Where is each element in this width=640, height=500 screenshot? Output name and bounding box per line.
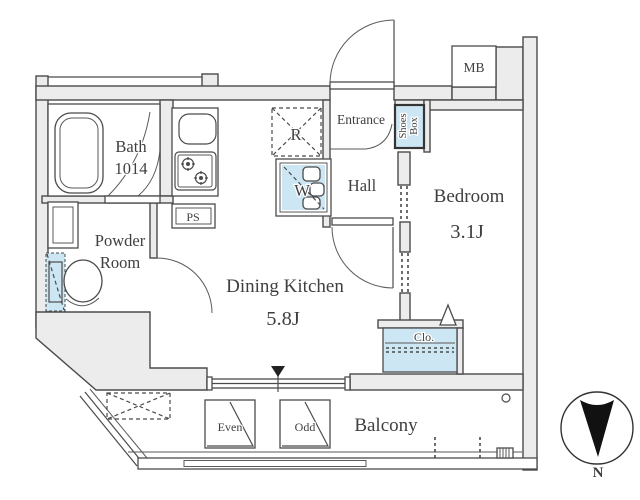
wall-dk-bedroom-upper: [400, 222, 410, 252]
entrance-door-swing-arc: [330, 20, 394, 84]
window-marker-icon: [271, 366, 285, 377]
bedroom-size-label: 3.1J: [450, 221, 484, 243]
hatch-even-label: Even: [218, 420, 243, 434]
balcony-label: Balcony: [354, 415, 418, 436]
bath-label: Bath: [115, 137, 147, 156]
shoes-box-label-1: Shoes: [398, 113, 409, 138]
refrigerator-label: R: [290, 125, 301, 144]
floor-plan: MB Bath 1014: [0, 0, 640, 500]
closet: Clo.: [383, 328, 457, 372]
refrigerator-space: R: [272, 108, 321, 156]
emergency-hatch-dashed-box: [107, 393, 170, 419]
wall-right: [523, 37, 537, 470]
wall-powder-right: [150, 203, 157, 258]
dining-kitchen-area: Dining Kitchen 5.8J: [226, 276, 344, 330]
kitchen-counter: [172, 108, 218, 196]
balcony-partition-hatch: [497, 448, 513, 458]
dining-kitchen-label: Dining Kitchen: [226, 276, 344, 297]
wall-bottom-right-band: [350, 374, 523, 390]
sliding-door-hall-bedroom: [401, 186, 407, 221]
entrance-threshold: [330, 82, 394, 89]
wall-right-of-mb: [496, 47, 523, 100]
wall-top-right-band: [394, 86, 452, 100]
ps-label: PS: [186, 210, 199, 224]
pipe-space: PS: [172, 204, 215, 228]
compass-needle: [580, 400, 614, 457]
bedroom-label: Bedroom: [434, 186, 505, 207]
wall-closet-right: [457, 328, 463, 374]
hall-threshold: [332, 218, 393, 225]
powder-room-label-2: Room: [100, 253, 141, 272]
dining-kitchen-size-label: 5.8J: [266, 308, 300, 330]
hall-label: Hall: [348, 176, 377, 195]
wall-bedroom-top: [424, 100, 523, 110]
wall-top-left-band: [36, 86, 330, 100]
hatch-even: Even: [205, 400, 255, 448]
washer-label: W: [294, 181, 310, 200]
drain-icon: [502, 394, 510, 402]
shoes-box-label-2: Box: [409, 117, 420, 135]
entrance-label: Entrance: [337, 112, 385, 127]
entrance-area: Entrance Shoes Box: [330, 105, 424, 149]
powder-room-label-1: Powder: [95, 231, 146, 250]
balcony-area: Even Odd Balcony: [80, 389, 537, 469]
compass-north-label: N: [593, 465, 604, 481]
closet-label: Clo.: [414, 330, 434, 344]
washer-space: W: [276, 159, 331, 216]
wall-under-mb: [452, 87, 496, 100]
entrance-door: [330, 20, 394, 89]
sliding-door-dk-bedroom: [402, 253, 408, 292]
bathtub: [55, 113, 103, 193]
closet-door-symbol: [440, 305, 456, 325]
wall-hall-bedroom: [398, 152, 410, 185]
wall-top-notch: [202, 74, 218, 87]
bath-room: Bath 1014: [48, 104, 160, 203]
entrance-step-line: [330, 124, 392, 149]
hall-area: Hall: [332, 176, 393, 288]
balcony-bottom-railing: [128, 452, 537, 469]
toilet: [46, 253, 102, 311]
hatch-odd-label: Odd: [295, 420, 316, 434]
wall-diagonal-wedge: [36, 312, 207, 390]
compass-icon: N: [561, 392, 633, 481]
meter-box-label: MB: [463, 60, 484, 75]
balcony-diagonal-railing: [80, 389, 147, 466]
toilet-bowl: [64, 260, 102, 302]
bath-threshold: [105, 196, 160, 203]
balcony-window: [207, 366, 350, 392]
wall-dk-bedroom-lower: [400, 293, 410, 322]
wall-bath-right: [160, 100, 173, 196]
hatch-odd: Odd: [280, 400, 330, 448]
bath-size-label: 1014: [115, 159, 148, 178]
powder-door-swing-arc: [157, 258, 212, 313]
